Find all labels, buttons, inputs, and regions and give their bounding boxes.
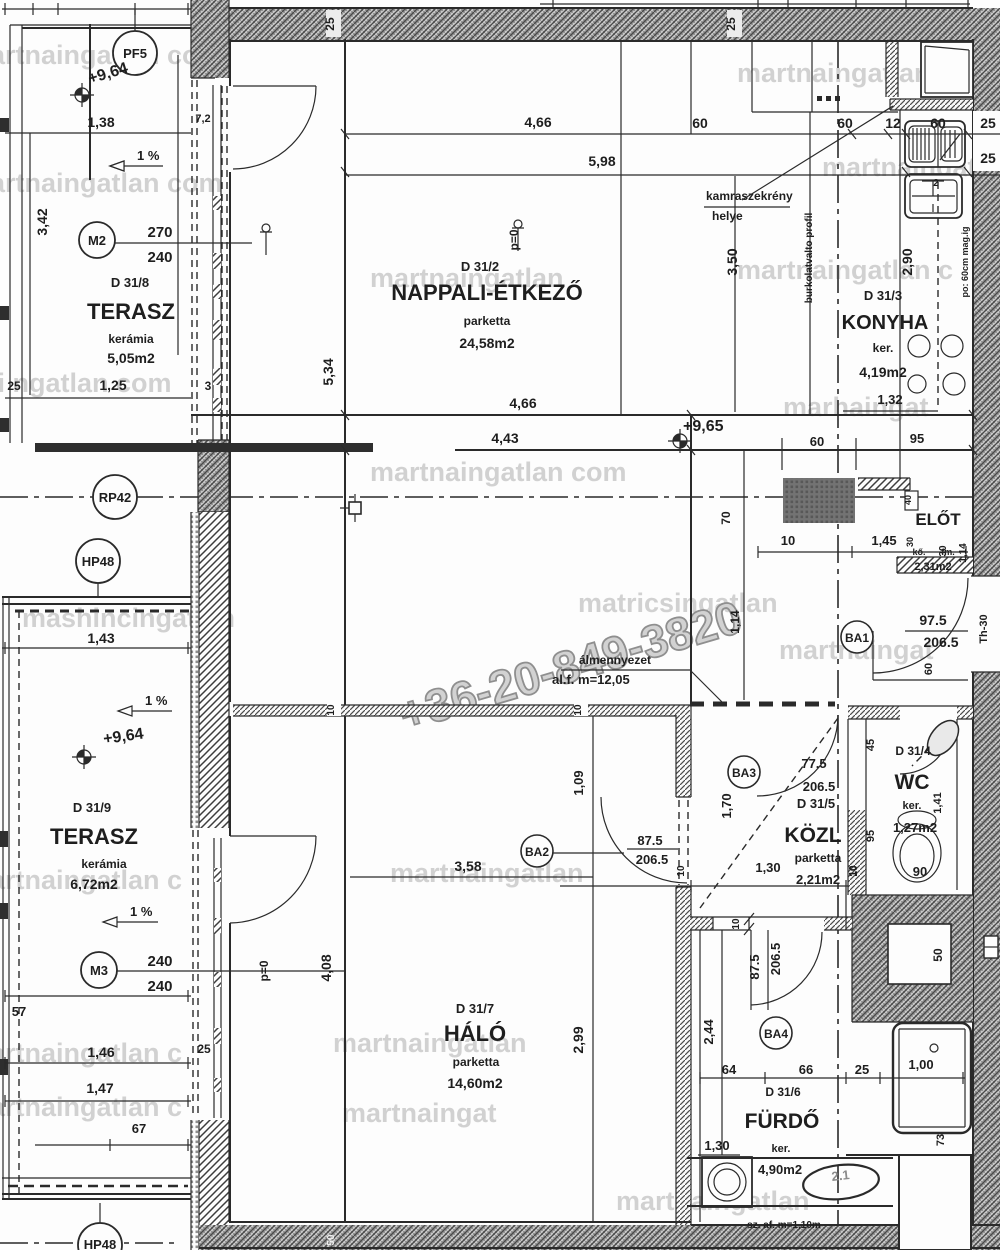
svg-text:martnaingatlan: martnaingatlan: [390, 858, 584, 888]
svg-text:240: 240: [147, 953, 172, 970]
svg-text:1 %: 1 %: [130, 904, 153, 919]
svg-text:D 31/7: D 31/7: [456, 1001, 494, 1016]
svg-text:4,08: 4,08: [318, 954, 334, 981]
svg-text:martnaingatlan com: martnaingatlan com: [0, 168, 223, 198]
svg-text:4,66: 4,66: [524, 114, 551, 130]
svg-text:PF5: PF5: [123, 46, 147, 61]
svg-text:60: 60: [923, 663, 935, 675]
svg-text:14,60m2: 14,60m2: [447, 1075, 502, 1091]
svg-text:40: 40: [903, 495, 913, 505]
svg-text:parketta: parketta: [795, 851, 842, 865]
svg-text:25: 25: [980, 150, 996, 166]
svg-text:64: 64: [722, 1062, 737, 1077]
svg-text:206.5: 206.5: [768, 943, 783, 976]
svg-text:martnaingatlan c: martnaingatlan c: [737, 255, 953, 285]
svg-text:4,19m2: 4,19m2: [859, 364, 907, 380]
svg-text:1,27m2: 1,27m2: [893, 820, 937, 835]
svg-text:3,42: 3,42: [34, 208, 50, 235]
svg-text:1,00: 1,00: [908, 1057, 933, 1072]
svg-text:D 31/8: D 31/8: [111, 275, 149, 290]
svg-text:30: 30: [938, 545, 949, 557]
svg-text:kerámia: kerámia: [108, 332, 154, 346]
svg-text:martnaingat: martnaingat: [342, 1098, 497, 1128]
svg-text:6,72m2: 6,72m2: [70, 876, 118, 892]
svg-text:57: 57: [12, 1004, 26, 1019]
svg-text:7,2: 7,2: [195, 113, 210, 125]
svg-text:90: 90: [913, 864, 927, 879]
svg-text:4,66: 4,66: [509, 395, 536, 411]
svg-text:burkolatvalto profil: burkolatvalto profil: [804, 212, 815, 303]
svg-text:97.5: 97.5: [919, 612, 946, 628]
svg-text:Th-30: Th-30: [978, 614, 990, 643]
svg-text:10: 10: [849, 865, 860, 877]
svg-text:1,14: 1,14: [728, 610, 742, 634]
svg-text:1,43: 1,43: [87, 630, 114, 646]
svg-text:FÜRDŐ: FÜRDŐ: [745, 1110, 820, 1133]
svg-text:martnaingatlan com: martnaingatlan com: [370, 457, 627, 487]
svg-text:3: 3: [205, 379, 212, 393]
svg-text:270: 270: [147, 224, 172, 241]
svg-text:240: 240: [147, 249, 172, 266]
svg-text:WC: WC: [895, 771, 930, 794]
svg-text:67: 67: [132, 1121, 146, 1136]
svg-text:al.f. m=12,05: al.f. m=12,05: [552, 672, 630, 687]
svg-text:10: 10: [676, 865, 687, 877]
svg-text:1,09: 1,09: [571, 770, 586, 795]
svg-text:73: 73: [935, 1134, 947, 1146]
svg-text:BA1: BA1: [845, 631, 869, 645]
svg-text:KÖZL: KÖZL: [784, 824, 841, 847]
svg-text:24,58m2: 24,58m2: [459, 335, 514, 351]
svg-text:2,44: 2,44: [701, 1019, 716, 1045]
svg-text:D 31/9: D 31/9: [73, 800, 111, 815]
svg-text:1,30: 1,30: [704, 1138, 729, 1153]
svg-text:1,41: 1,41: [932, 792, 944, 813]
svg-text:87.5: 87.5: [637, 833, 662, 848]
svg-text:70: 70: [719, 511, 733, 525]
svg-text:5,05m2: 5,05m2: [107, 350, 155, 366]
svg-text:BA2: BA2: [525, 845, 549, 859]
svg-text:60: 60: [930, 115, 946, 131]
svg-text:2,21m2: 2,21m2: [796, 872, 840, 887]
svg-text:50: 50: [326, 1234, 337, 1246]
svg-text:1 %: 1 %: [145, 693, 168, 708]
svg-text:1,25: 1,25: [99, 377, 126, 393]
svg-text:25: 25: [197, 1042, 211, 1056]
svg-text:77.5: 77.5: [801, 756, 826, 771]
svg-text:30: 30: [905, 537, 915, 547]
svg-text:D 31/6: D 31/6: [765, 1085, 801, 1099]
svg-text:2,99: 2,99: [570, 1026, 586, 1053]
svg-text:206.5: 206.5: [803, 779, 836, 794]
svg-text:1,70: 1,70: [719, 793, 734, 818]
svg-text:álmennyezet: álmennyezet: [579, 653, 651, 667]
svg-text:4,43: 4,43: [491, 430, 518, 446]
svg-text:1,30: 1,30: [755, 860, 780, 875]
svg-text:BA3: BA3: [732, 766, 756, 780]
svg-text:BA4: BA4: [764, 1027, 788, 1041]
svg-text:1,38: 1,38: [87, 114, 114, 130]
svg-text:TERASZ: TERASZ: [50, 824, 138, 849]
svg-text:sz. af. m=1,10m: sz. af. m=1,10m: [747, 1220, 821, 1231]
svg-text:12: 12: [885, 115, 901, 131]
svg-text:D 31/4: D 31/4: [895, 744, 931, 758]
svg-text:10: 10: [326, 704, 337, 716]
svg-text:ELŐT: ELŐT: [915, 510, 961, 529]
svg-text:45: 45: [865, 739, 877, 751]
svg-text:2.1: 2.1: [831, 1167, 851, 1184]
svg-text:marhaingat: marhaingat: [783, 392, 929, 422]
svg-text:25: 25: [7, 379, 21, 393]
svg-text:25: 25: [980, 115, 996, 131]
svg-text:nei ngatlan com: nei ngatlan com: [0, 368, 172, 398]
svg-text:95: 95: [865, 830, 877, 842]
svg-text:M2: M2: [88, 233, 106, 248]
svg-text:1,45: 1,45: [871, 533, 896, 548]
svg-text:kerámia: kerámia: [81, 857, 127, 871]
svg-text:D 31/5: D 31/5: [797, 796, 835, 811]
svg-text:5,98: 5,98: [588, 153, 615, 169]
svg-text:1,46: 1,46: [87, 1044, 114, 1060]
svg-text:3,50: 3,50: [724, 248, 740, 275]
svg-text:NAPPALI-ÉTKEZŐ: NAPPALI-ÉTKEZŐ: [391, 280, 582, 305]
svg-text:206.5: 206.5: [923, 634, 958, 650]
svg-text:50: 50: [931, 948, 945, 962]
svg-text:10: 10: [731, 918, 742, 930]
svg-text:KONYHA: KONYHA: [842, 312, 929, 334]
svg-text:1 %: 1 %: [137, 148, 160, 163]
svg-text:RP42: RP42: [99, 490, 132, 505]
svg-text:HP48: HP48: [82, 554, 115, 569]
svg-text:60: 60: [692, 115, 708, 131]
svg-text:1,47: 1,47: [86, 1080, 113, 1096]
svg-text:martnaingatlan c: martnaingatlan c: [0, 1092, 182, 1122]
svg-text:5,34: 5,34: [320, 358, 336, 385]
svg-text:25: 25: [323, 17, 337, 31]
svg-text:2,90: 2,90: [899, 248, 915, 275]
svg-text:87.5: 87.5: [747, 954, 762, 979]
svg-text:95: 95: [910, 431, 924, 446]
svg-text:helye: helye: [712, 209, 743, 223]
svg-text:3,58: 3,58: [454, 858, 481, 874]
svg-text:ker.: ker.: [903, 800, 922, 812]
svg-text:1,14: 1,14: [958, 543, 969, 563]
svg-text:+9,65: +9,65: [683, 418, 724, 435]
svg-text:TERASZ: TERASZ: [87, 299, 175, 324]
svg-text:po: 60cm mag.ig: po: 60cm mag.ig: [960, 226, 970, 297]
svg-text:parketta: parketta: [464, 314, 511, 328]
svg-text:p=0: p=0: [507, 229, 521, 250]
svg-text:p=0: p=0: [257, 960, 271, 981]
svg-text:2,31m2: 2,31m2: [914, 561, 951, 573]
svg-text:ker.: ker.: [873, 341, 894, 355]
svg-text:D 31/3: D 31/3: [864, 288, 902, 303]
svg-text:66: 66: [799, 1062, 813, 1077]
svg-text:ker.: ker.: [772, 1143, 791, 1155]
svg-text:240: 240: [147, 978, 172, 995]
svg-text:10: 10: [781, 533, 795, 548]
svg-text:206.5: 206.5: [636, 852, 669, 867]
svg-text:1,32: 1,32: [877, 392, 902, 407]
svg-text:25: 25: [724, 17, 738, 31]
svg-text:10: 10: [573, 704, 584, 716]
svg-text:M3: M3: [90, 963, 108, 978]
svg-text:HP48: HP48: [84, 1237, 117, 1250]
svg-text:60: 60: [810, 434, 824, 449]
svg-text:D 31/2: D 31/2: [461, 259, 499, 274]
svg-text:4,90m2: 4,90m2: [758, 1162, 802, 1177]
svg-text:60: 60: [837, 115, 853, 131]
svg-text:parketta: parketta: [453, 1055, 500, 1069]
svg-text:HÁLÓ: HÁLÓ: [444, 1021, 506, 1046]
svg-text:25: 25: [855, 1062, 869, 1077]
